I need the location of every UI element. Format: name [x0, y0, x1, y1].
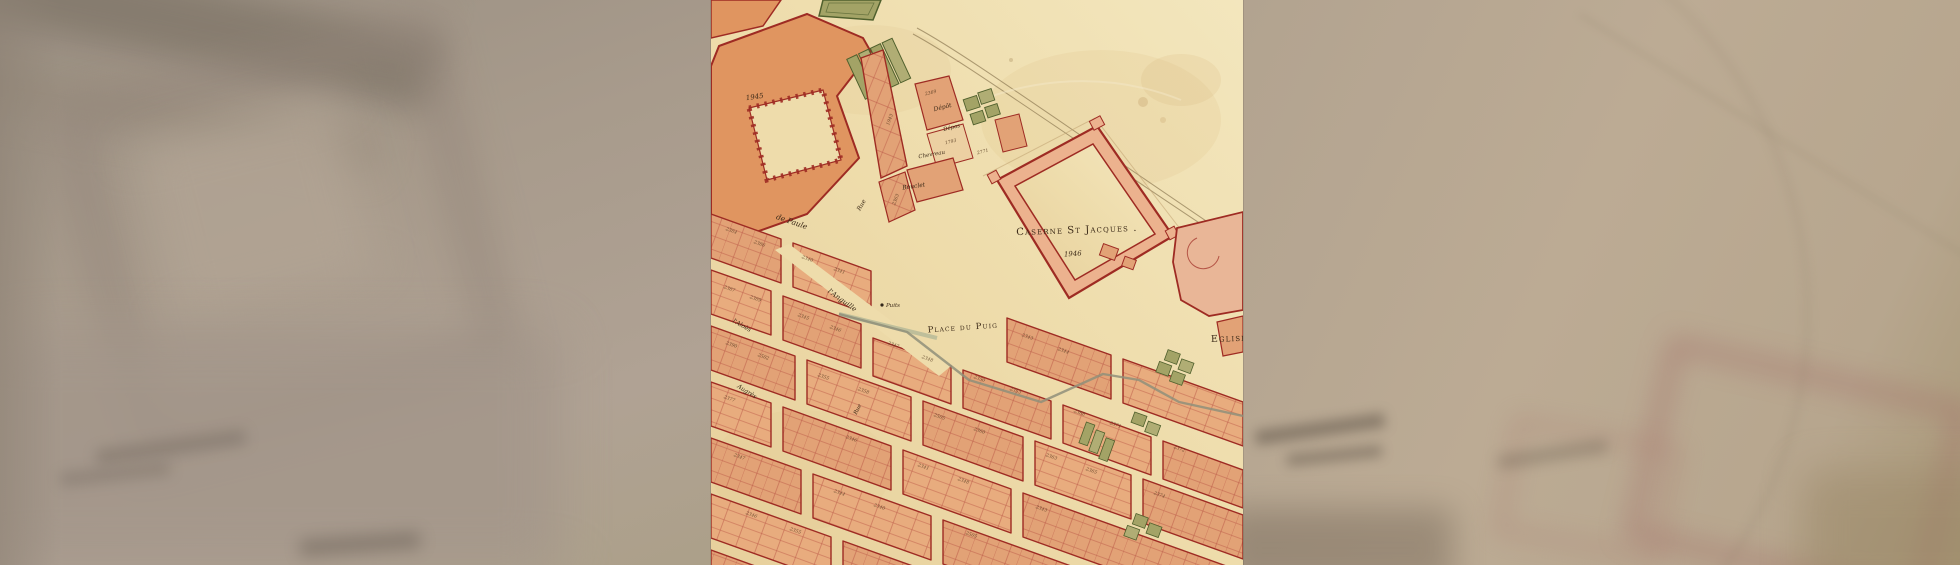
- screenshot-stage: 2384238623402341234323442387238923452346…: [0, 0, 1960, 565]
- blur-wash: [0, 330, 560, 565]
- map-label-caserne-number: 1946: [1064, 249, 1083, 258]
- map-label-puits: Puits: [885, 303, 900, 309]
- blur-corner-shade: [1803, 470, 1960, 565]
- blur-smudge: [1243, 508, 1453, 565]
- well-symbol: [880, 303, 883, 306]
- blur-edge-shade: [0, 0, 60, 565]
- blurred-backdrop-right: [1243, 0, 1960, 565]
- map-canvas: 2384238623402341234323442387238923452346…: [711, 0, 1243, 565]
- blurred-backdrop-left: [0, 0, 711, 565]
- map-image: 2384238623402341234323442387238923452346…: [711, 0, 1243, 565]
- map-label-eglise: Eglise: [1211, 333, 1243, 345]
